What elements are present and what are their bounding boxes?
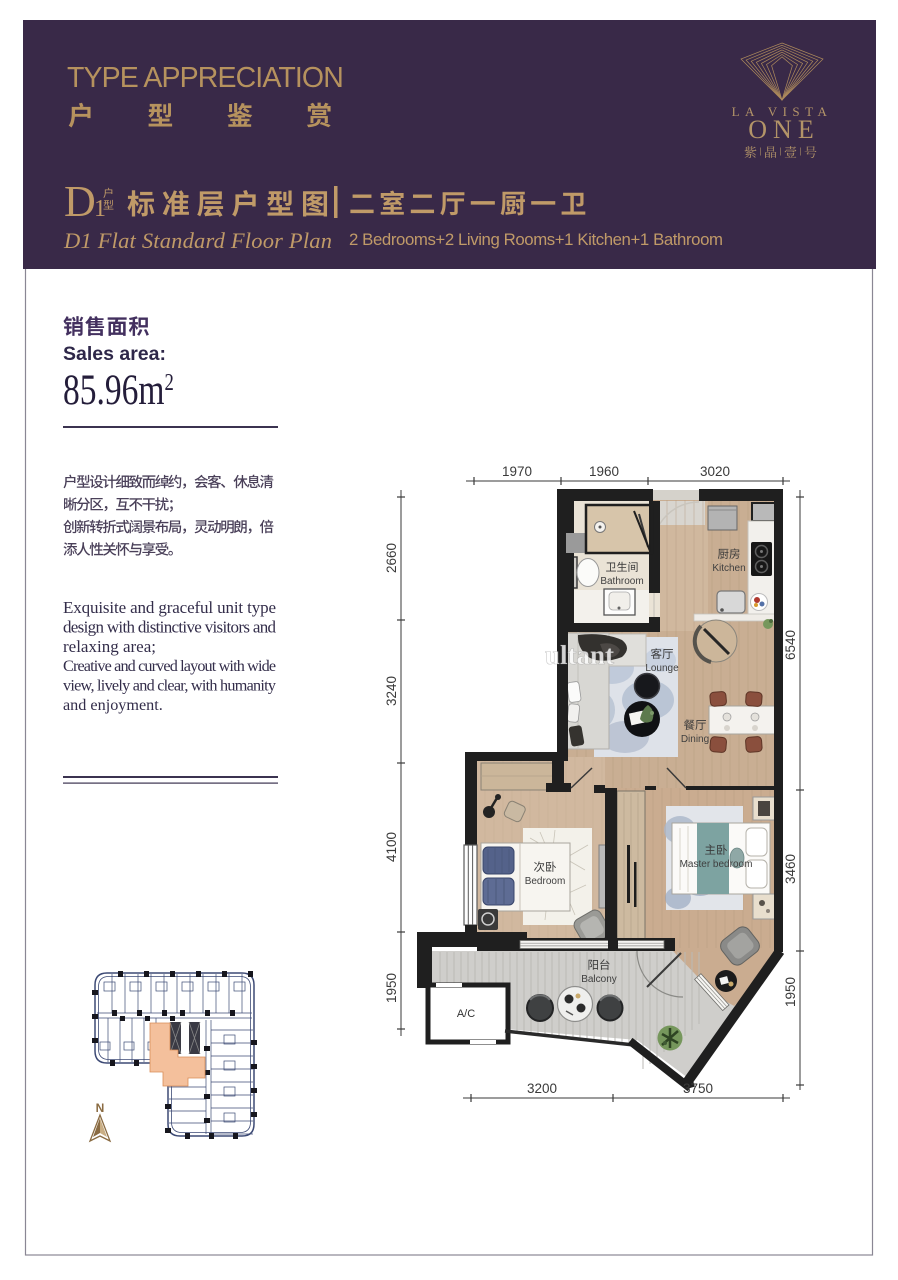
svg-text:D1 Flat Standard Floor Plan: D1 Flat Standard Floor Plan	[63, 228, 332, 253]
svg-text:3460: 3460	[783, 854, 798, 884]
svg-text:relaxing area;: relaxing area;	[63, 637, 156, 656]
svg-text:D: D	[64, 177, 96, 226]
svg-text:1960: 1960	[589, 464, 619, 479]
svg-text:view, lively and clear, with h: view, lively and clear, with humanity	[63, 677, 277, 695]
svg-text:Kitchen: Kitchen	[712, 563, 745, 574]
svg-text:3750: 3750	[683, 1081, 713, 1096]
svg-text:Exquisite and graceful unit ty: Exquisite and graceful unit type	[63, 598, 276, 617]
svg-text:ONE: ONE	[748, 115, 819, 144]
svg-text:and enjoyment.: and enjoyment.	[63, 696, 163, 714]
svg-text:Creative and curved layout wit: Creative and curved layout with wide	[63, 657, 276, 675]
svg-text:ultant: ultant	[545, 640, 614, 670]
svg-text:Lounge: Lounge	[645, 663, 679, 674]
svg-text:Bedroom: Bedroom	[525, 876, 566, 887]
svg-text:2660: 2660	[384, 543, 399, 573]
svg-text:6540: 6540	[783, 630, 798, 660]
svg-text:3020: 3020	[700, 464, 730, 479]
svg-text:4100: 4100	[384, 832, 399, 862]
svg-text:TYPE APPRECIATION: TYPE APPRECIATION	[67, 62, 345, 94]
svg-text:1950: 1950	[384, 973, 399, 1003]
svg-text:3240: 3240	[384, 676, 399, 706]
svg-text:N: N	[96, 1101, 105, 1115]
svg-text:1950: 1950	[783, 977, 798, 1007]
svg-text:Balcony: Balcony	[581, 974, 617, 985]
svg-text:Bathroom: Bathroom	[600, 576, 643, 587]
svg-text:design with distinctive visito: design with distinctive visitors and	[63, 617, 277, 636]
svg-text:Master bedroom: Master bedroom	[680, 859, 753, 870]
svg-text:A/C: A/C	[457, 1008, 475, 1020]
svg-text:85.96m2: 85.96m2	[63, 367, 174, 414]
svg-text:Sales area:: Sales area:	[63, 343, 166, 365]
svg-text:Dining: Dining	[681, 734, 709, 745]
svg-text:1970: 1970	[502, 464, 532, 479]
svg-text:2 Bedrooms+2 Living Rooms+1 Ki: 2 Bedrooms+2 Living Rooms+1 Kitchen+1 Ba…	[349, 230, 723, 249]
svg-text:3200: 3200	[527, 1081, 557, 1096]
